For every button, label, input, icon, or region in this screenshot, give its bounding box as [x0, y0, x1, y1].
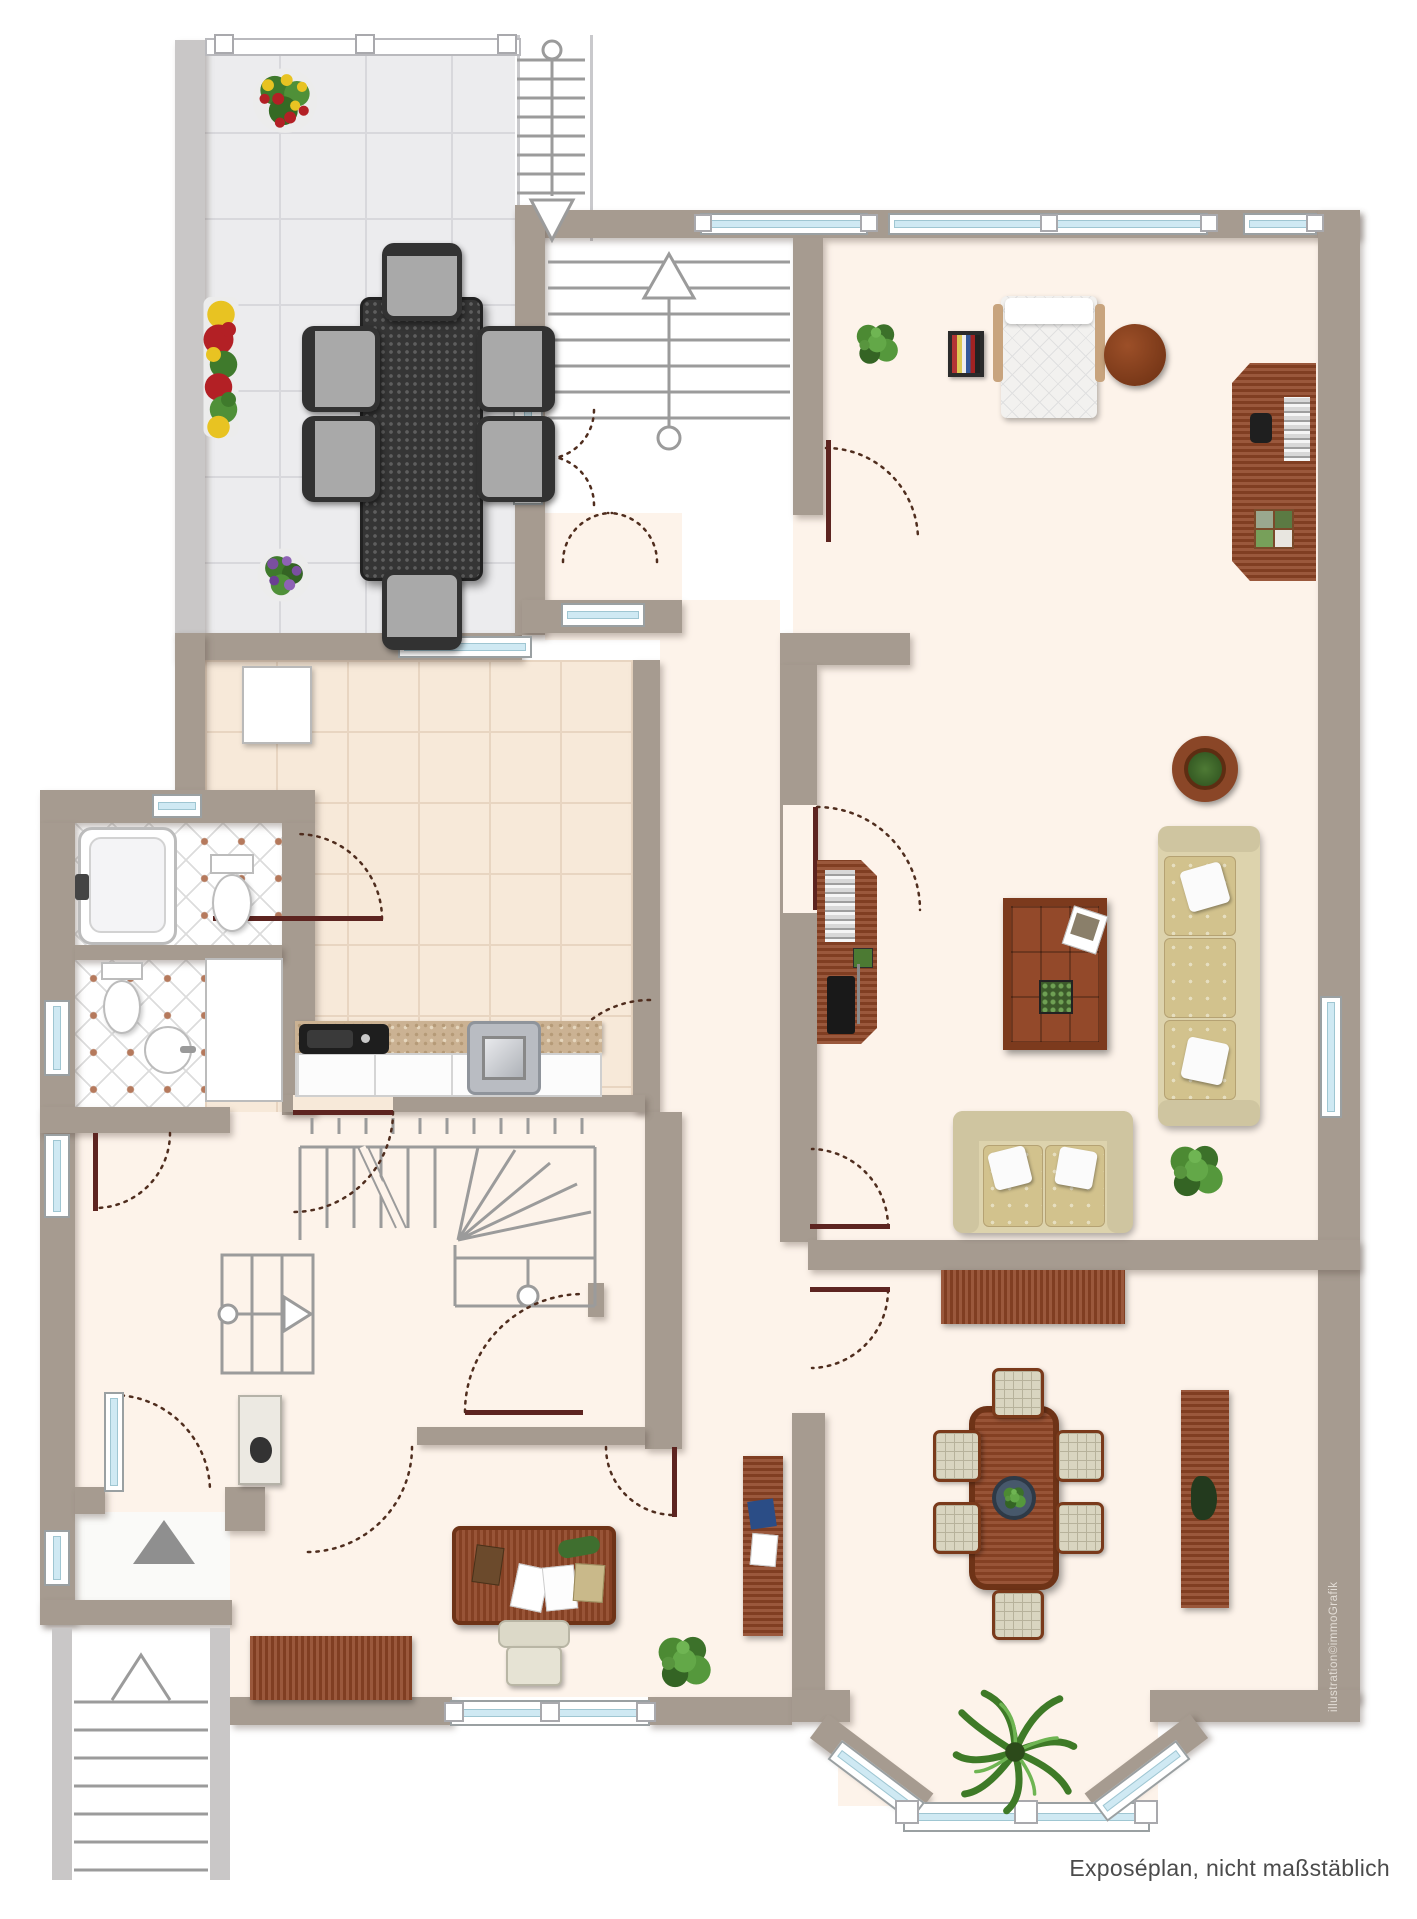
wall-office-north [417, 1427, 645, 1445]
flower-pot-purple [240, 540, 328, 610]
window-post [1200, 214, 1218, 232]
outdoor-chair [477, 326, 555, 412]
coffee-table [1003, 898, 1107, 1050]
window-west-3 [44, 1530, 70, 1586]
toilet-wc-bowl [103, 980, 141, 1034]
toilet-bath-bowl [212, 874, 252, 932]
wall-office-south-left [230, 1697, 452, 1725]
toilet-bath [210, 854, 254, 874]
entry-direction-triangle [133, 1520, 195, 1564]
wc-closet [205, 958, 283, 1102]
sofa-backrest [953, 1111, 1133, 1141]
outdoor-chair [382, 243, 462, 321]
desk-books [1284, 397, 1310, 461]
sideboard-plant [1191, 1476, 1217, 1520]
stoop-rail-right [210, 1628, 230, 1880]
tv-sideboard-plant [853, 948, 873, 968]
wall-west-outer [40, 823, 75, 1623]
outdoor-chair [302, 416, 380, 502]
door-leaf-study [826, 440, 831, 542]
stoop-rail-left [52, 1628, 72, 1880]
dining-table [969, 1406, 1059, 1590]
stoop-chevron-icon [112, 1655, 170, 1700]
window-west-2 [44, 1134, 70, 1218]
television [827, 976, 855, 1034]
wall-stairwell-east [793, 238, 823, 515]
window-right [1320, 996, 1342, 1118]
sofa-armrest [1158, 1100, 1260, 1126]
bathtub-faucet [75, 874, 89, 900]
desk-phone [1250, 413, 1272, 443]
door-leaf-kitchen [293, 1110, 393, 1115]
round-table-plant [1188, 752, 1222, 786]
kitchen-stove [467, 1021, 541, 1095]
wall-living-dining [808, 1240, 1360, 1270]
tray-item [1256, 511, 1273, 528]
sofa-armrest [953, 1111, 979, 1233]
chaise-arm-left [993, 304, 1003, 382]
desk-pencil-case [557, 1534, 601, 1559]
outdoor-chair [302, 326, 380, 412]
round-table-with-plant [1172, 736, 1238, 802]
washbasin-faucet [180, 1046, 196, 1053]
wc-washbasin [144, 1026, 192, 1074]
window-post [1306, 214, 1324, 232]
sink-bowl [307, 1030, 353, 1048]
hall-cabinet [238, 1395, 282, 1485]
tv-sideboard [817, 860, 877, 1044]
desk-notepad [573, 1563, 606, 1603]
wall-bay-left [792, 1690, 850, 1722]
round-side-table [1104, 324, 1166, 386]
plan-disclaimer: Exposéplan, nicht maßstäblich [880, 1855, 1390, 1882]
sofa-pillow [1180, 1036, 1230, 1086]
dining-chair [992, 1368, 1044, 1418]
cabinet-item [250, 1437, 272, 1463]
sofa-cushion [1164, 938, 1236, 1018]
wall-vestibule-b [225, 1487, 265, 1531]
wall-kitchen-east [633, 660, 660, 1112]
chaise-lounge [1001, 296, 1097, 418]
tv-sideboard-books [825, 870, 855, 942]
window-post [1134, 1800, 1158, 1824]
bathtub-inner [89, 837, 166, 933]
stove-top [482, 1036, 526, 1080]
study-desk-sideboard [1232, 363, 1316, 581]
magazine-spines [952, 335, 980, 373]
flower-box [196, 288, 246, 446]
tv-stand-arm [857, 964, 860, 1024]
flower-pot-red-yellow [240, 58, 330, 143]
floor-plan: Exposéplan, nicht maßstäblich illustrati… [0, 0, 1417, 1919]
outdoor-chair [382, 570, 462, 650]
window-post [540, 1702, 560, 1722]
office-sideboard [250, 1636, 412, 1700]
chaise-headrest [1005, 298, 1093, 324]
dining-sideboard-east [1181, 1390, 1229, 1608]
shelf-paper [750, 1533, 779, 1567]
wall-vestibule-south [40, 1600, 232, 1625]
door-leaf-dining-south [810, 1287, 890, 1292]
dining-chair [933, 1430, 981, 1482]
railing-post [214, 34, 234, 54]
wall-stair-stub [588, 1283, 604, 1317]
tray-item [1256, 530, 1273, 547]
office-plant [650, 1626, 716, 1698]
door-leaf-entrance-glazed [104, 1392, 124, 1492]
shelf-blue-folder [747, 1498, 777, 1529]
living-door-opening [783, 805, 817, 913]
stairwell-floor [545, 238, 793, 513]
sofa-pillow [1054, 1146, 1098, 1190]
kitchen-sink [299, 1024, 389, 1054]
office-shelf [743, 1456, 783, 1636]
wall-office-east [792, 1413, 825, 1697]
wall-office-south-right [648, 1697, 792, 1725]
dining-chair [1056, 1502, 1104, 1554]
bathtub [78, 827, 177, 945]
tray-item [1275, 511, 1292, 528]
window-post [860, 214, 878, 232]
coffee-table-photo [1062, 905, 1109, 954]
palm-plant [940, 1682, 1090, 1822]
outdoor-chair [477, 416, 555, 502]
door-leaf-living-north [810, 1224, 890, 1229]
wall-vestibule-a [75, 1487, 105, 1514]
window-post [636, 1702, 656, 1722]
living-plant [1162, 1136, 1228, 1206]
illustrator-watermark: illustration©immoGrafik [1328, 1581, 1340, 1712]
door-leaf-wc [93, 1133, 98, 1211]
magazine-rack [948, 331, 984, 377]
office-chair-seat [498, 1620, 570, 1648]
dining-sideboard-north [941, 1270, 1125, 1324]
desk-book [471, 1544, 504, 1586]
window-post [1040, 214, 1058, 232]
office-desk [452, 1526, 616, 1625]
window-post [444, 1702, 464, 1722]
window-west-1 [44, 1000, 70, 1076]
photo-image [1070, 913, 1100, 941]
chaise-arm-right [1095, 304, 1105, 382]
sofa-armrest [1158, 826, 1260, 852]
wall-hall-east [645, 1112, 682, 1449]
tray-item [1275, 530, 1292, 547]
door-leaf-office [465, 1410, 583, 1415]
wall-living-cap [780, 633, 910, 665]
dining-chair [933, 1502, 981, 1554]
corridor-floor [660, 600, 780, 1112]
window-top-1 [700, 213, 868, 235]
window-post [895, 1800, 919, 1824]
desk-plant-tray [1254, 509, 1294, 549]
coffee-table-plant [1039, 980, 1073, 1014]
dining-chair [1056, 1430, 1104, 1482]
window-post [694, 214, 712, 232]
dining-chair [992, 1590, 1044, 1640]
window-landing [561, 603, 645, 627]
two-seat-sofa [953, 1111, 1133, 1233]
wall-bath-south [40, 1107, 230, 1133]
wall-right [1318, 210, 1360, 1702]
wall-living-west [780, 665, 817, 1242]
kitchen-corner-cabinet [242, 666, 312, 744]
railing-post [497, 34, 517, 54]
kitchen-cabinets [295, 1053, 602, 1097]
office-chair [498, 1620, 570, 1686]
three-seat-sofa [1158, 826, 1260, 1126]
sofa-armrest [1107, 1111, 1133, 1233]
study-plant [850, 318, 902, 370]
sink-faucet [361, 1034, 370, 1043]
window-bath [152, 794, 202, 818]
wall-kitchen-west [175, 633, 205, 795]
railing-post [355, 34, 375, 54]
dining-table-bowl [992, 1476, 1036, 1520]
door-leaf-dining [672, 1447, 677, 1517]
toilet-wc [101, 962, 143, 980]
office-chair-back [506, 1646, 562, 1686]
